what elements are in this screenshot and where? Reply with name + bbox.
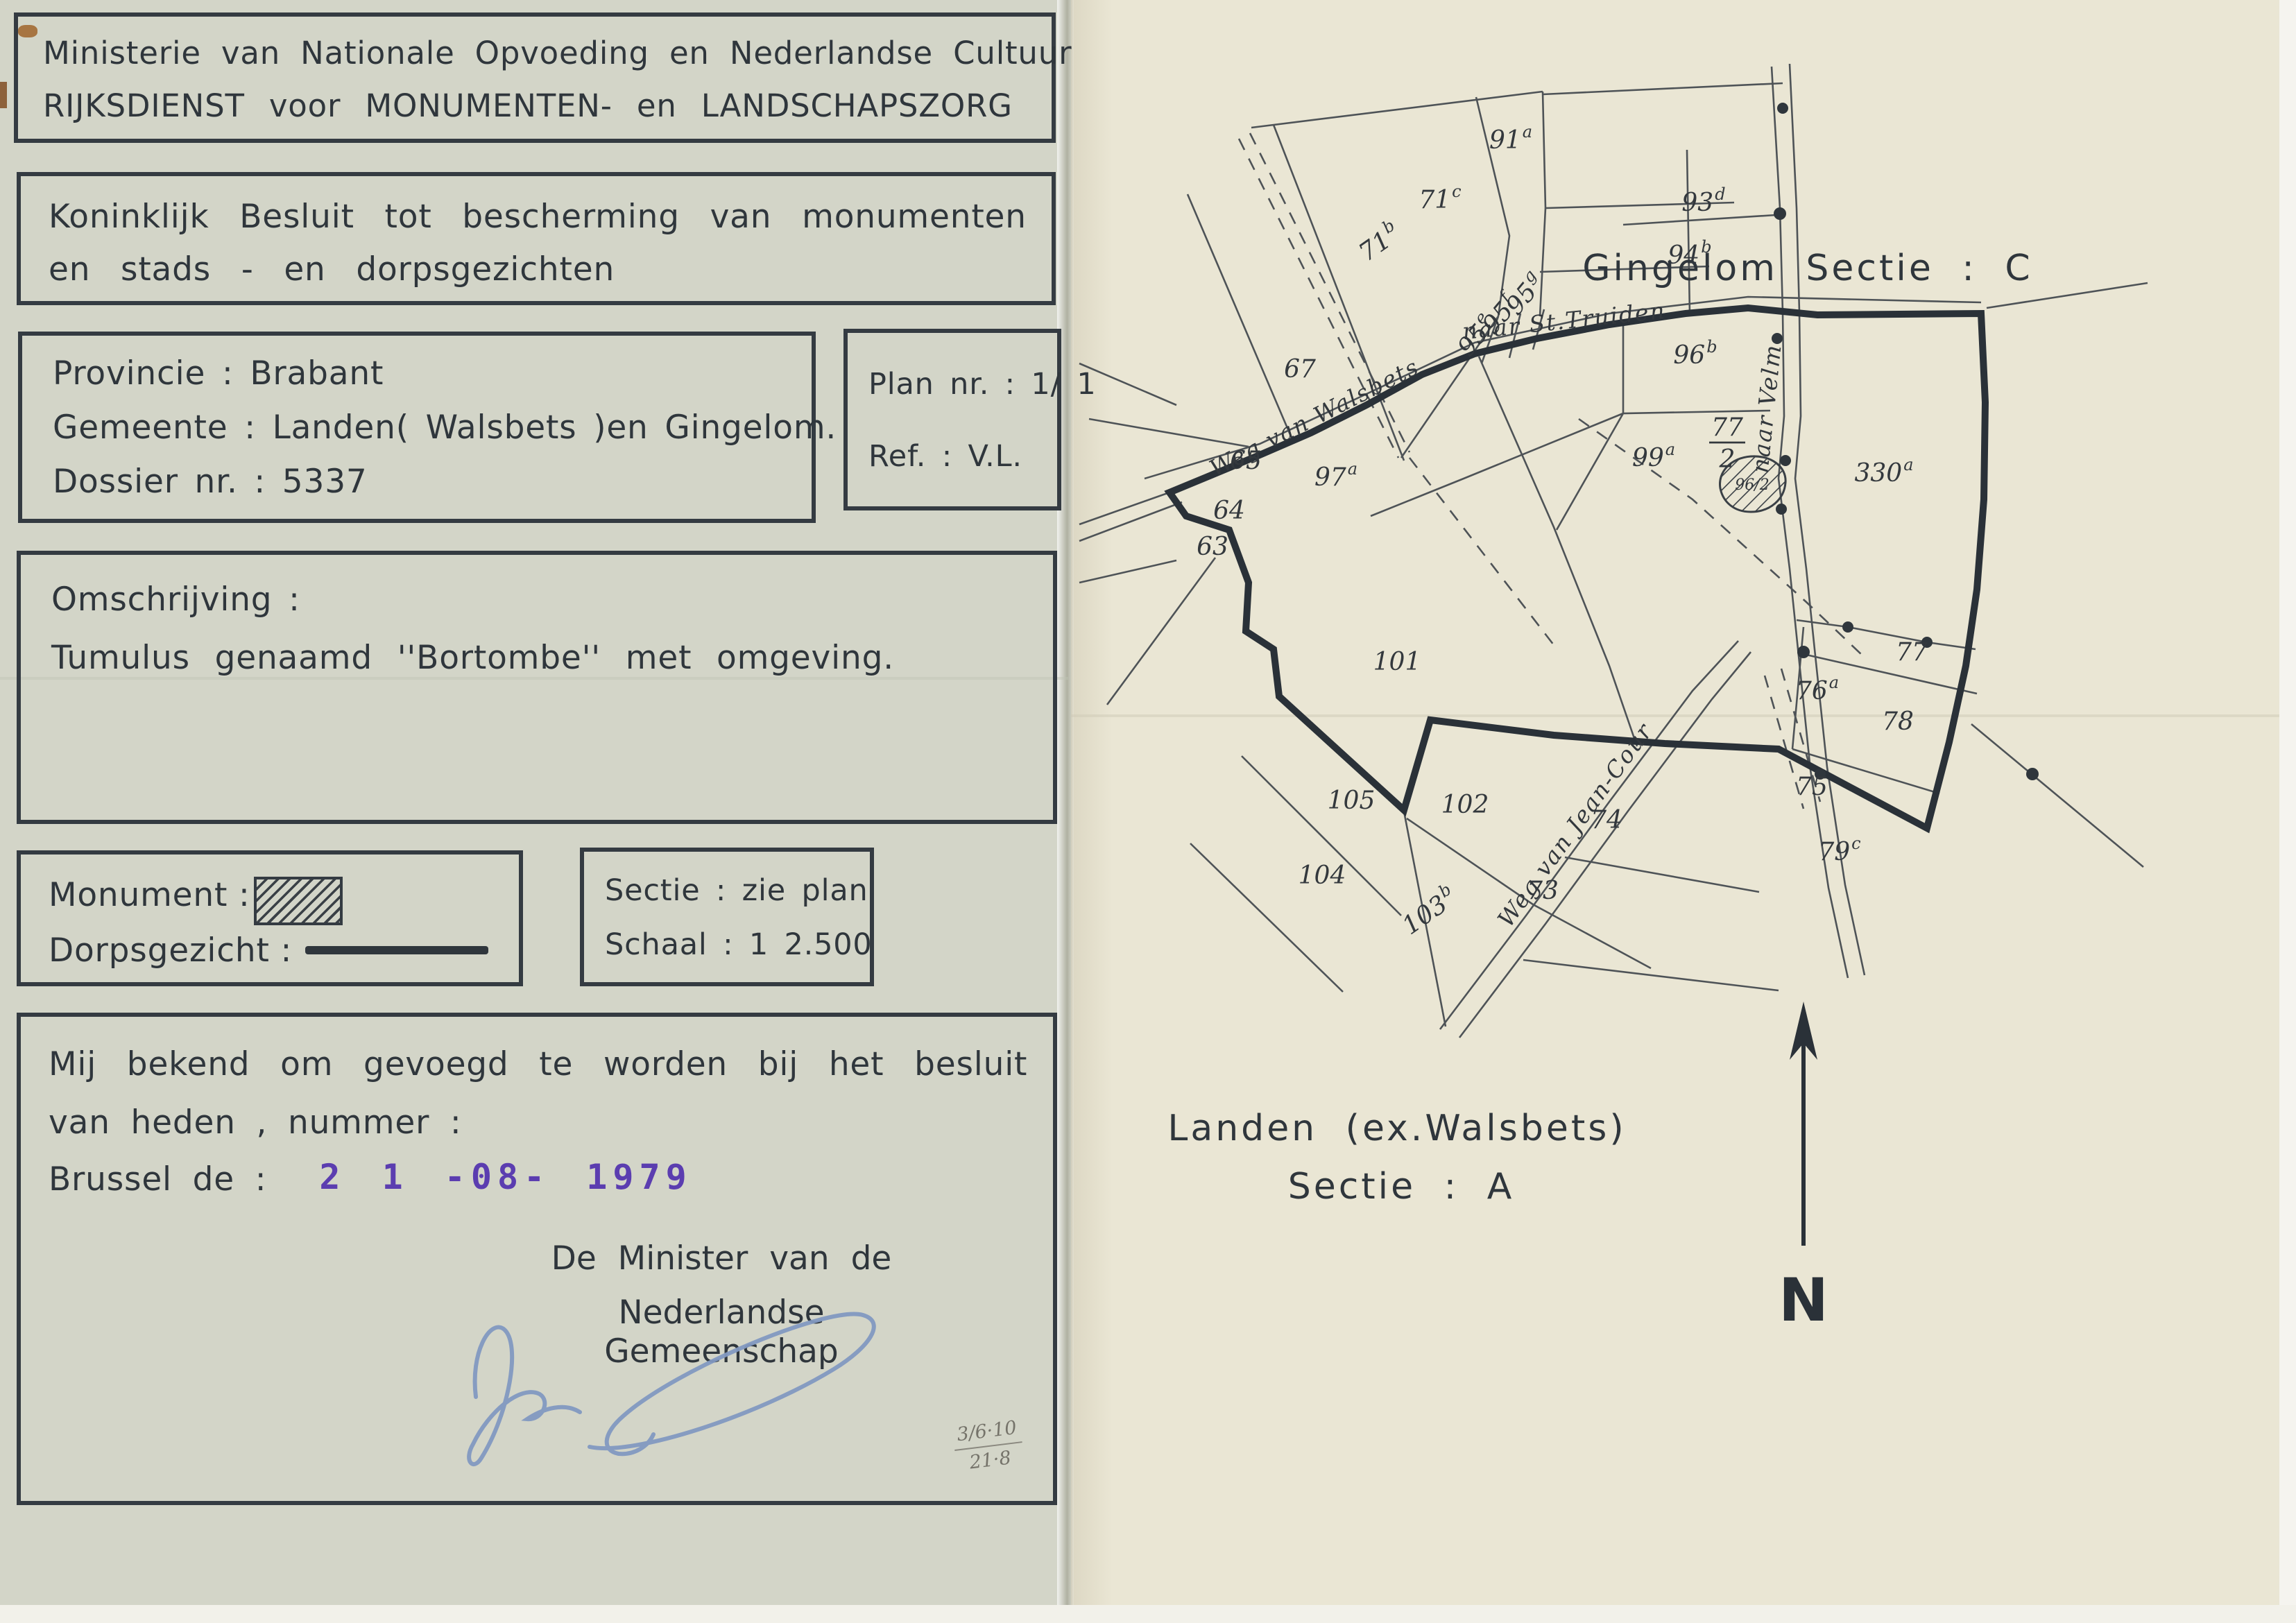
monument-hatch-swatch xyxy=(254,877,343,925)
plan-number: Plan nr. : 1/ 1 xyxy=(868,368,1097,402)
brussel-label: Brussel de : xyxy=(49,1160,266,1199)
dossier-line: Dossier nr. : 5337 xyxy=(53,462,368,501)
dorpsgezicht-line-swatch xyxy=(305,946,488,954)
plan-ref: Ref. : V.L. xyxy=(868,440,1022,474)
scan-edge-bottom xyxy=(0,1605,2296,1623)
monument-label: Monument : xyxy=(49,875,250,914)
schaal-line: Schaal : 1 2.500 xyxy=(605,928,873,963)
fold-crease-right xyxy=(1071,714,2279,717)
note-box: Mij bekend om gevoegd te worden bij het … xyxy=(17,1013,1057,1505)
rijksdienst-title: RIJKSDIENST voor MONUMENTEN- en LANDSCHA… xyxy=(43,89,1013,125)
dorpsgezicht-label: Dorpsgezicht : xyxy=(49,931,292,970)
header-box: Ministerie van Nationale Opvoeding en Ne… xyxy=(14,12,1056,143)
minister-line1: De Minister van de xyxy=(492,1239,950,1278)
plan-box: Plan nr. : 1/ 1 Ref. : V.L. xyxy=(843,329,1061,510)
scan-edge-right xyxy=(2279,0,2296,1623)
pencil-note: 3/6·10 21·8 xyxy=(951,1414,1026,1479)
province-box: Provincie : Brabant Gemeente : Landen( W… xyxy=(18,332,816,523)
date-stamp: 2 1 -08- 1979 xyxy=(319,1157,692,1197)
decree-line1: Koninklijk Besluit tot bescherming van m… xyxy=(49,197,1027,236)
note-line3: Brussel de :2 1 -08- 1979 xyxy=(49,1158,692,1199)
note-line1: Mij bekend om gevoegd te worden bij het … xyxy=(49,1045,1027,1083)
page-fold xyxy=(1057,0,1074,1623)
description-text: Tumulus genaamd ''Bortombe'' met omgevin… xyxy=(51,638,894,677)
scanned-document: Ministerie van Nationale Opvoeding en Ne… xyxy=(0,0,2296,1623)
paper-stain-edge xyxy=(0,82,7,108)
legend-box: Monument : Dorpsgezicht : xyxy=(17,850,523,986)
decree-line2: en stads - en dorpsgezichten xyxy=(49,250,615,289)
sectie-line: Sectie : zie plan xyxy=(605,874,868,909)
minister-line2: Nederlandse Gemeenschap xyxy=(492,1293,950,1371)
note-line2: van heden , nummer : xyxy=(49,1103,462,1142)
decree-box: Koninklijk Besluit tot bescherming van m… xyxy=(17,172,1056,305)
map-page-paper xyxy=(1071,0,2296,1623)
description-box: Omschrijving : Tumulus genaamd ''Bortomb… xyxy=(17,551,1057,824)
scale-box: Sectie : zie plan Schaal : 1 2.500 xyxy=(580,848,874,986)
ministry-title: Ministerie van Nationale Opvoeding en Ne… xyxy=(43,36,1072,72)
province-line: Provincie : Brabant xyxy=(53,354,384,393)
municipality-line: Gemeente : Landen( Walsbets )en Gingelom… xyxy=(53,408,837,447)
description-label: Omschrijving : xyxy=(51,580,300,619)
